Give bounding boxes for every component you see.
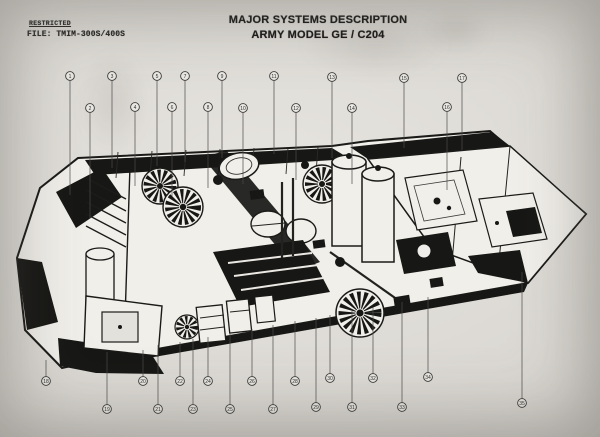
fan	[163, 187, 203, 227]
callout-number: 16	[444, 105, 450, 111]
callout-number: 9	[221, 74, 224, 80]
callout-number: 12	[293, 106, 299, 112]
callout-9: 9	[218, 72, 227, 158]
callout-number: 30	[327, 376, 333, 382]
callout-number: 28	[292, 379, 298, 385]
fan	[336, 289, 384, 337]
callout-number: 7	[184, 74, 187, 80]
access-panel-dot	[118, 325, 122, 329]
callout-number: 34	[425, 375, 431, 381]
tank	[362, 174, 394, 262]
callout-number: 17	[459, 76, 465, 82]
callout-number: 19	[104, 407, 110, 413]
van-illustration	[17, 131, 586, 374]
callout-29: 29	[312, 318, 321, 411]
callout-number: 27	[270, 407, 276, 413]
callout-number: 14	[349, 106, 355, 112]
callout-number: 25	[227, 407, 233, 413]
tank-cap	[375, 165, 381, 171]
motor-face	[417, 244, 431, 258]
callout-18: 18	[42, 360, 51, 385]
bell-housing	[251, 211, 285, 237]
callout-number: 13	[329, 75, 335, 81]
nose-tank-top	[86, 248, 114, 260]
callout-number: 8	[207, 105, 210, 111]
callout-number: 33	[399, 405, 405, 411]
callout-11: 11	[270, 72, 279, 154]
panel-knob	[495, 221, 499, 225]
callout-number: 23	[190, 407, 196, 413]
callout-34: 34	[424, 297, 433, 381]
callout-number: 18	[43, 379, 49, 385]
callout-7: 7	[181, 72, 190, 162]
callout-number: 31	[349, 405, 355, 411]
callout-number: 3	[111, 74, 114, 80]
callout-33: 33	[398, 302, 407, 411]
callout-3: 3	[108, 72, 117, 168]
callout-5: 5	[153, 72, 162, 166]
callout-number: 11	[271, 74, 276, 80]
callout-number: 35	[519, 401, 525, 407]
callout-number: 26	[249, 379, 255, 385]
callout-number: 6	[171, 105, 174, 111]
callout-number: 32	[370, 376, 376, 382]
callout-number: 10	[240, 106, 246, 112]
callout-25: 25	[226, 333, 235, 413]
fan	[175, 315, 199, 339]
panel-knob	[447, 206, 451, 210]
callout-number: 4	[134, 105, 137, 111]
callout-27: 27	[269, 325, 278, 413]
tank	[332, 162, 366, 246]
callout-number: 2	[89, 106, 92, 112]
photo-page: RESTRICTED FILE: TMIM-300S/400S MAJOR SY…	[0, 0, 600, 437]
cutaway-diagram: 1234567891011121314151617181920212223242…	[0, 0, 600, 437]
callout-number: 29	[313, 405, 319, 411]
callout-number: 21	[155, 407, 161, 413]
callout-number: 22	[177, 379, 183, 385]
callout-number: 1	[69, 74, 72, 80]
callout-number: 24	[205, 379, 211, 385]
bell-housing	[286, 219, 316, 243]
tank-cap	[346, 153, 352, 159]
callout-number: 5	[156, 74, 159, 80]
callout-number: 20	[140, 379, 146, 385]
panel-knob	[434, 198, 441, 205]
callout-number: 15	[401, 76, 407, 82]
